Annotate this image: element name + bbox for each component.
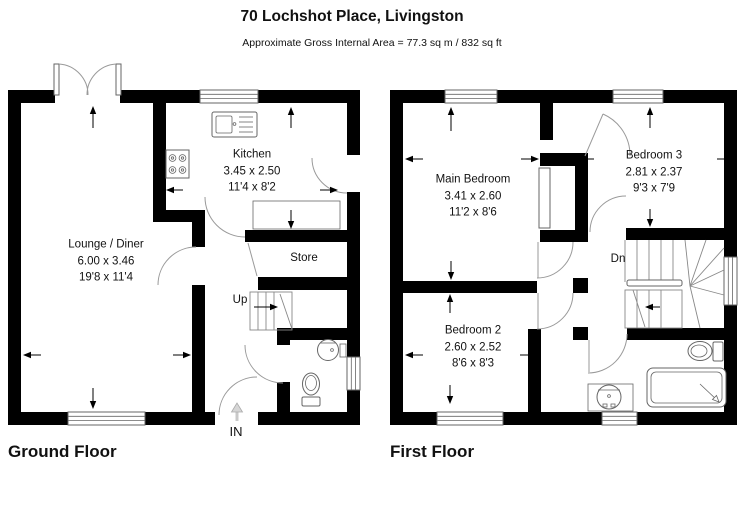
kitchen-door-arc — [205, 197, 245, 237]
room-dims-imperial: 8'6 x 8'3 — [445, 355, 502, 372]
french-doors-icon — [54, 64, 121, 95]
back-door-arc — [312, 158, 347, 193]
ground-floor-title: Ground Floor — [8, 442, 117, 462]
gf-kitchen-sink-icon — [212, 112, 257, 137]
floorplan-page: 70 Lochshot Place, Livingston Approximat… — [0, 0, 744, 508]
page-title: 70 Lochshot Place, Livingston — [240, 8, 463, 26]
entrance-label: IN — [230, 424, 243, 441]
lounge-door-arc — [158, 247, 196, 285]
first-floor-title: First Floor — [390, 442, 474, 462]
store-door-leaf — [248, 243, 257, 276]
gf-hob-icon — [166, 150, 189, 178]
bedroom2-door-arc — [537, 293, 573, 329]
room-name: Kitchen — [224, 146, 281, 163]
stairs-window — [724, 257, 737, 305]
room-dims-metric: 6.00 x 3.46 — [68, 253, 143, 270]
room-dims-imperial: 9'3 x 7'9 — [626, 180, 683, 197]
gf-wc-sink-icon — [318, 340, 347, 361]
gf-wc-toilet-icon — [302, 373, 320, 406]
bedroom2-window — [437, 412, 503, 425]
bedroom3-door-arc — [590, 196, 626, 232]
bedroom3-label: Bedroom 3 2.81 x 2.37 9'3 x 7'9 — [626, 147, 683, 197]
room-dims-metric: 2.60 x 2.52 — [445, 339, 502, 356]
wc-window — [347, 357, 360, 390]
room-dims-metric: 3.45 x 2.50 — [224, 163, 281, 180]
room-dims-imperial: 11'4 x 8'2 — [224, 179, 281, 196]
bathroom-window — [602, 412, 637, 425]
main-bedroom-window — [445, 90, 497, 103]
ground-floor-plan — [8, 64, 360, 425]
room-dims-metric: 2.81 x 2.37 — [626, 164, 683, 181]
ff-bath-icon — [647, 368, 726, 407]
bedroom2-label: Bedroom 2 2.60 x 2.52 8'6 x 8'3 — [445, 322, 502, 372]
ff-closet-door-panel — [539, 168, 550, 228]
room-name: Lounge / Diner — [68, 236, 143, 253]
page-subtitle: Approximate Gross Internal Area = 77.3 s… — [242, 37, 501, 49]
main-bedroom-door-arc — [537, 242, 573, 278]
room-name: Bedroom 3 — [626, 147, 683, 164]
room-name: Main Bedroom — [436, 171, 511, 188]
lounge-label: Lounge / Diner 6.00 x 3.46 19'8 x 11'4 — [68, 236, 143, 286]
gf-entrance-arrow-icon — [232, 403, 243, 421]
dn-label: Dn — [611, 251, 626, 268]
ff-bathroom-sink-icon — [588, 384, 633, 411]
bedroom3-window — [613, 90, 663, 103]
gf-stairs-icon — [250, 292, 292, 330]
room-name: Bedroom 2 — [445, 322, 502, 339]
kitchen-window — [200, 90, 258, 103]
first-floor-plan — [390, 90, 737, 425]
room-dims-imperial: 11'2 x 8'6 — [436, 204, 511, 221]
bathroom-door-arc — [588, 334, 627, 373]
store-label: Store — [290, 250, 318, 267]
gf-kitchen-counter — [253, 201, 340, 229]
main-bedroom-label: Main Bedroom 3.41 x 2.60 11'2 x 8'6 — [436, 171, 511, 221]
lounge-window — [68, 412, 145, 425]
ff-stairs-icon — [625, 240, 724, 328]
room-dims-imperial: 19'8 x 11'4 — [68, 269, 143, 286]
ff-toilet-icon — [688, 342, 723, 362]
kitchen-label: Kitchen 3.45 x 2.50 11'4 x 8'2 — [224, 146, 281, 196]
up-label: Up — [233, 292, 248, 309]
room-dims-metric: 3.41 x 2.60 — [436, 188, 511, 205]
bedroom3-top-door-leaf — [585, 114, 603, 156]
